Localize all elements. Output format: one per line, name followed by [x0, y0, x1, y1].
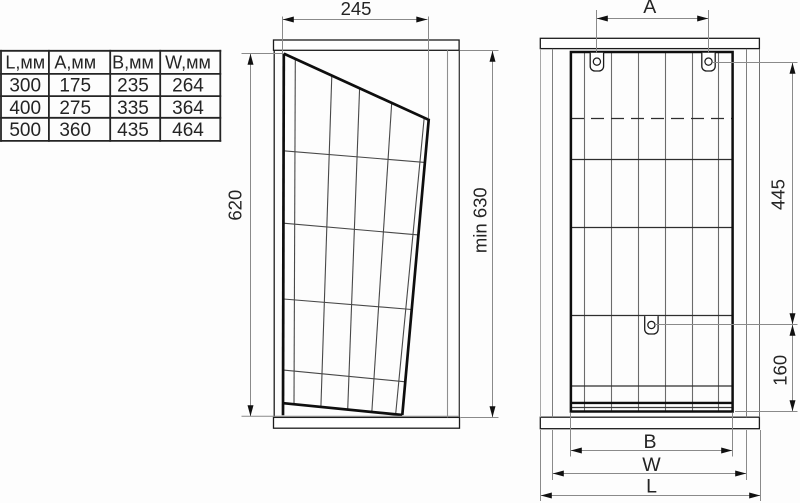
svg-text:L,мм: L,мм [5, 53, 45, 73]
svg-text:275: 275 [59, 98, 91, 119]
svg-text:245: 245 [341, 0, 372, 19]
svg-text:W: W [642, 454, 661, 476]
svg-text:500: 500 [9, 120, 41, 141]
svg-text:360: 360 [59, 120, 91, 141]
svg-text:min 630: min 630 [470, 187, 491, 253]
svg-text:A,мм: A,мм [54, 53, 96, 73]
svg-text:B,мм: B,мм [112, 53, 154, 73]
svg-text:264: 264 [172, 76, 204, 97]
svg-text:335: 335 [117, 98, 149, 119]
svg-text:B: B [643, 431, 656, 453]
svg-text:435: 435 [117, 120, 149, 141]
svg-text:300: 300 [9, 76, 41, 97]
svg-text:464: 464 [172, 120, 204, 141]
svg-text:364: 364 [172, 98, 204, 119]
svg-text:235: 235 [117, 76, 149, 97]
svg-text:620: 620 [225, 190, 246, 221]
svg-text:A: A [643, 0, 656, 18]
svg-text:160: 160 [770, 355, 791, 386]
svg-text:445: 445 [768, 179, 789, 210]
svg-text:400: 400 [9, 98, 41, 119]
svg-text:175: 175 [59, 76, 91, 97]
svg-text:L: L [646, 476, 657, 498]
svg-text:W,мм: W,мм [165, 53, 211, 73]
